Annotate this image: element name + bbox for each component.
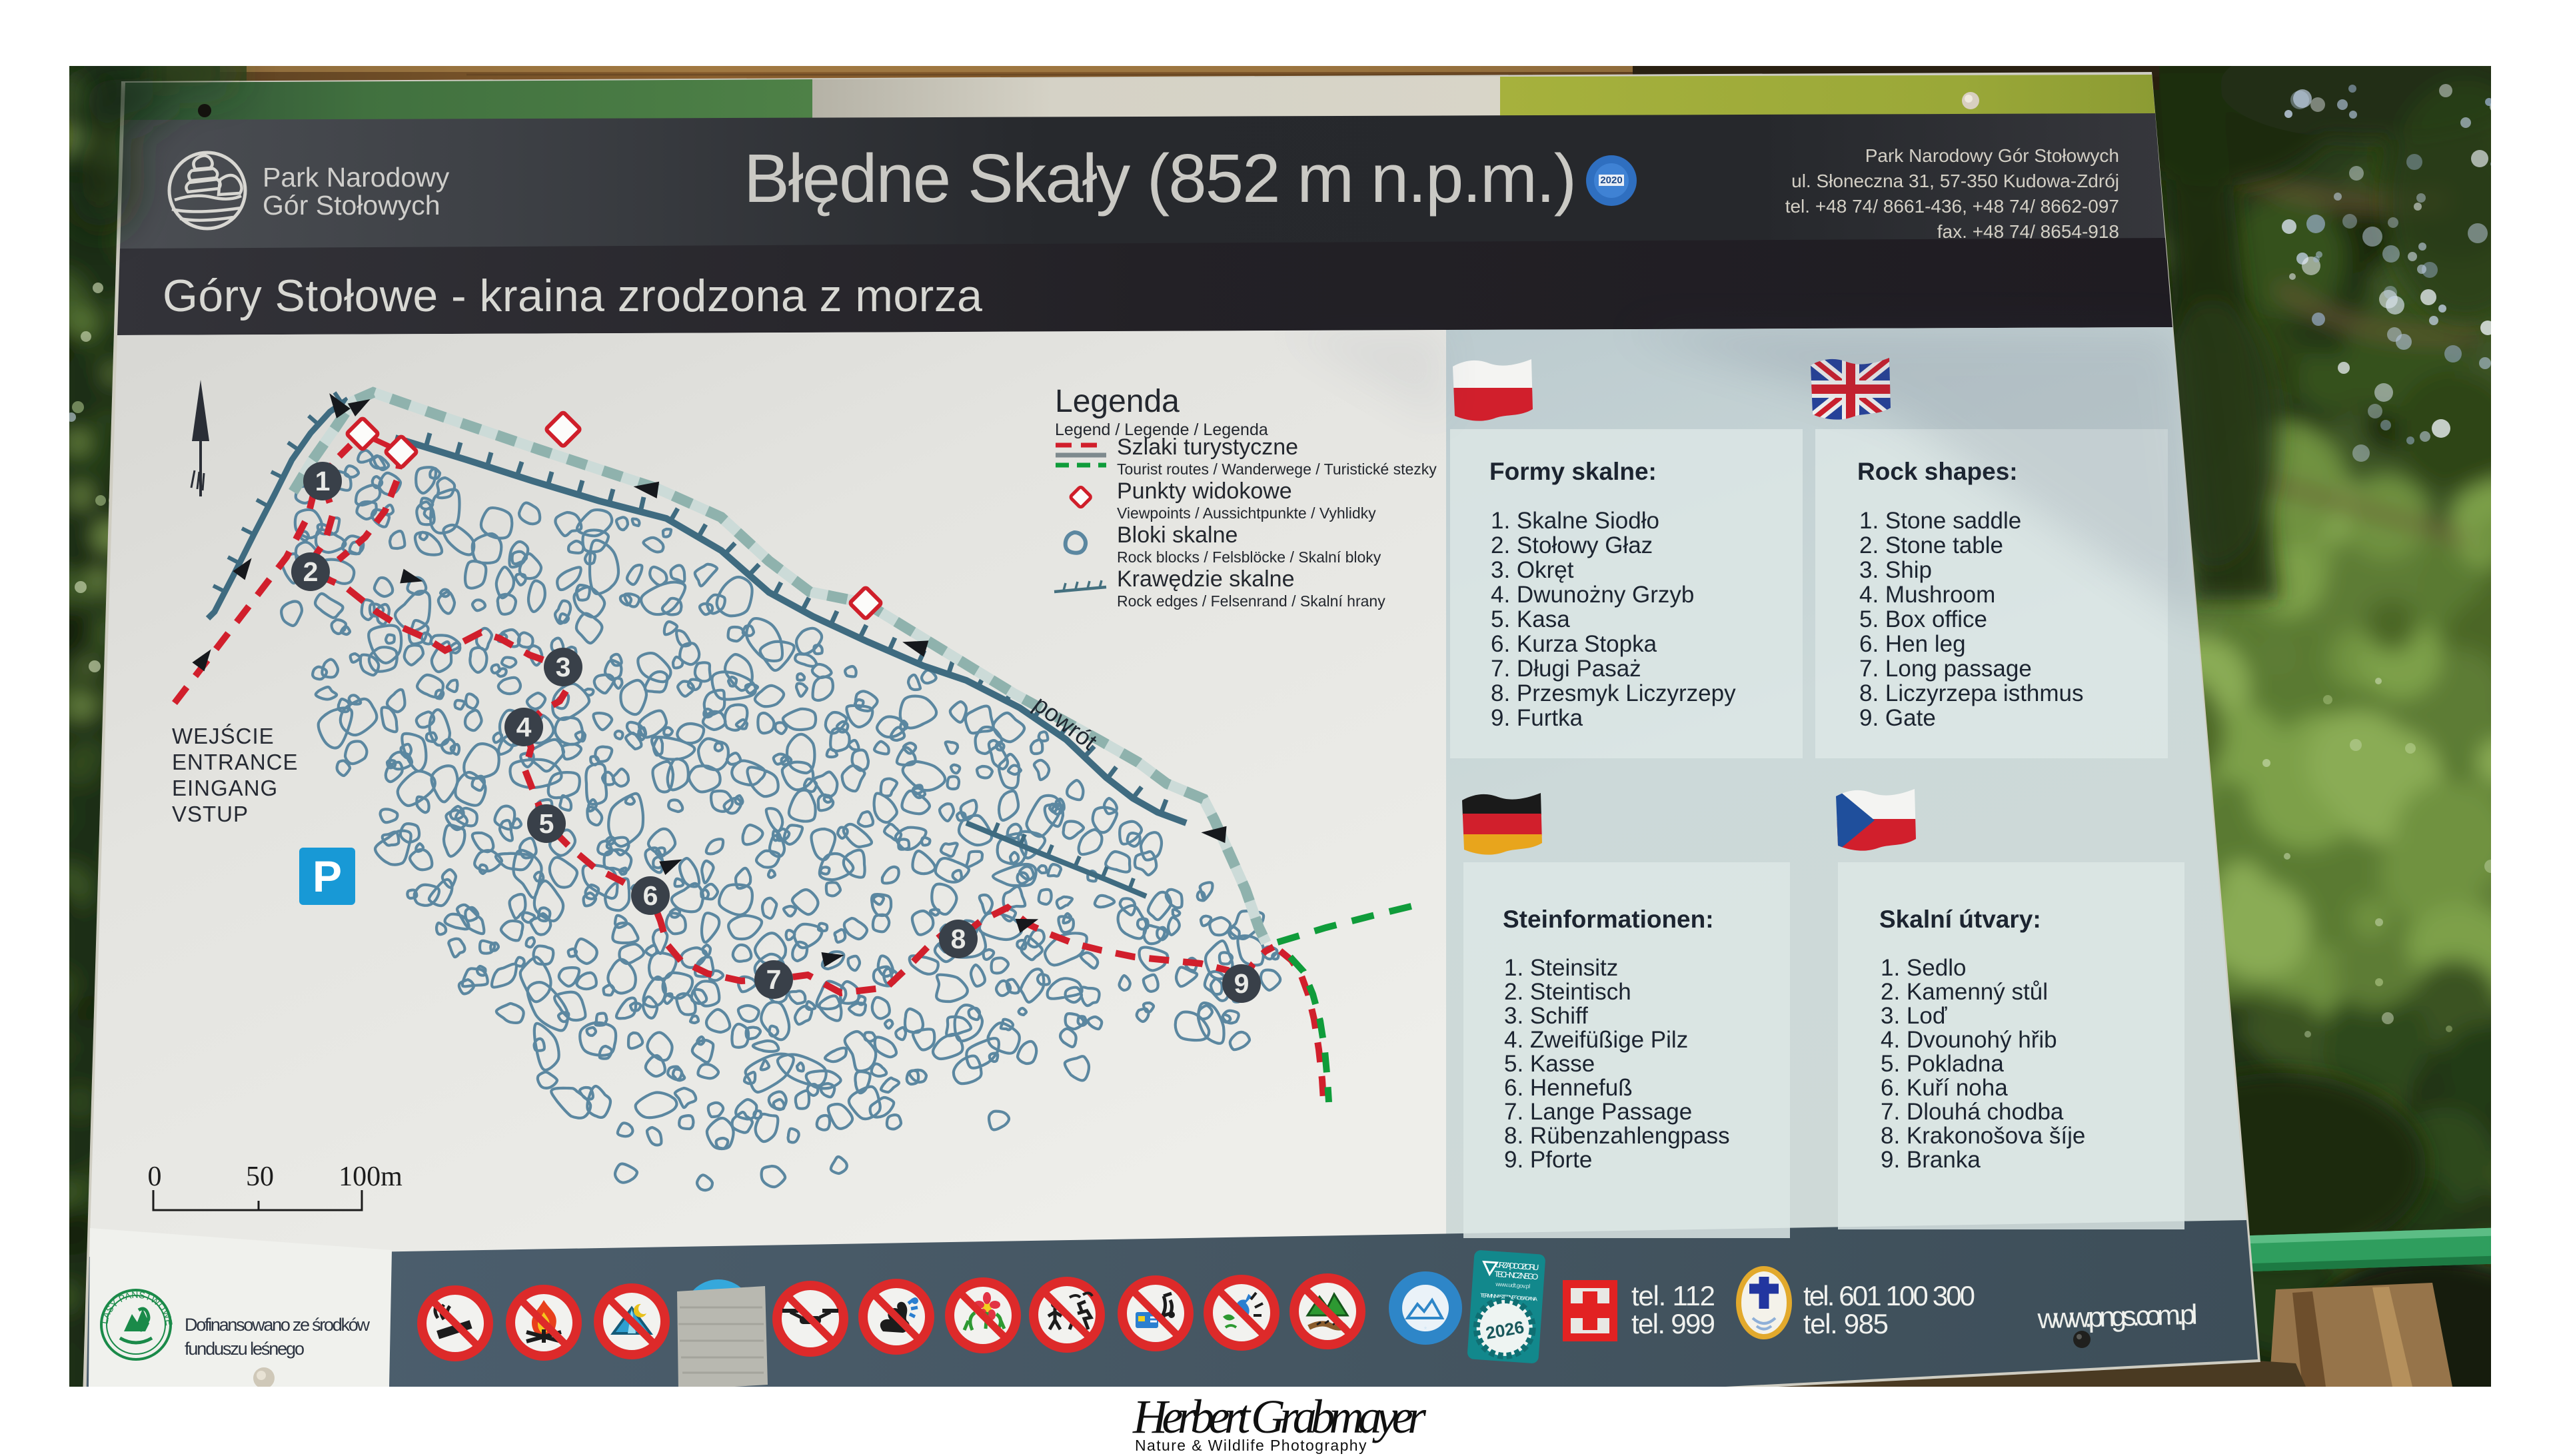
svg-text:9. Pforte: 9. Pforte (1504, 1147, 1592, 1173)
svg-text:Herbert Grabmayer: Herbert Grabmayer (1132, 1390, 1427, 1443)
svg-text:6. Kurza Stopka: 6. Kurza Stopka (1491, 631, 1657, 657)
svg-text:1. Skalne Siodło: 1. Skalne Siodło (1491, 508, 1659, 534)
svg-text:8. Rübenzahlengpass: 8. Rübenzahlengpass (1504, 1123, 1730, 1149)
svg-text:2. Stone table: 2. Stone table (1859, 532, 2003, 558)
svg-text:4: 4 (516, 712, 532, 742)
svg-text:6. Hen leg: 6. Hen leg (1859, 631, 1966, 657)
svg-text:Skalní útvary:: Skalní útvary: (1879, 906, 2041, 933)
svg-text:Rock edges / Felsenrand / Skal: Rock edges / Felsenrand / Skalní hrany (1117, 592, 1385, 610)
svg-text:2. Steintisch: 2. Steintisch (1504, 979, 1631, 1005)
svg-text:Park Narodowy Gór Stołowych: Park Narodowy Gór Stołowych (1865, 145, 2119, 166)
svg-text:Formy skalne:: Formy skalne: (1489, 458, 1657, 485)
svg-text:7. Long passage: 7. Long passage (1859, 656, 2032, 682)
svg-text:3. Ship: 3. Ship (1859, 557, 1932, 583)
svg-text:4. Zweifüßige Pilz: 4. Zweifüßige Pilz (1504, 1027, 1688, 1053)
svg-text:4. Dwunożny Grzyb: 4. Dwunożny Grzyb (1491, 582, 1694, 608)
svg-text:www.pngs.com.pl: www.pngs.com.pl (2037, 1299, 2198, 1335)
svg-text:9. Branka: 9. Branka (1881, 1147, 1981, 1173)
svg-text:WEJŚCIE: WEJŚCIE (172, 723, 275, 748)
svg-text:Krawędzie skalne: Krawędzie skalne (1117, 566, 1294, 592)
svg-text:3. Schiff: 3. Schiff (1504, 1003, 1588, 1029)
svg-text:fax. +48 74/ 8654-918: fax. +48 74/ 8654-918 (1937, 221, 2119, 242)
svg-text:5. Pokladna: 5. Pokladna (1881, 1051, 2004, 1077)
svg-text:3. Loď: 3. Loď (1881, 1003, 1947, 1029)
svg-text:6. Kuří noha: 6. Kuří noha (1881, 1075, 2008, 1101)
svg-text:5. Box office: 5. Box office (1859, 606, 1987, 632)
svg-text:*: * (1424, 1325, 1427, 1334)
svg-text:7. Długi Pasaż: 7. Długi Pasaż (1491, 656, 1641, 682)
svg-text:50: 50 (246, 1161, 274, 1192)
svg-text:funduszu leśnego: funduszu leśnego (185, 1339, 305, 1359)
svg-text:9. Furtka: 9. Furtka (1491, 705, 1583, 731)
svg-text:8. Przesmyk Liczyrzepy: 8. Przesmyk Liczyrzepy (1491, 680, 1736, 706)
svg-text:Szlaki turystyczne: Szlaki turystyczne (1117, 434, 1298, 460)
svg-text:3. Okręt: 3. Okręt (1491, 557, 1574, 583)
svg-text:6. Hennefuß: 6. Hennefuß (1504, 1075, 1633, 1101)
svg-text:P: P (313, 852, 342, 901)
svg-text:Góry Stołowe - kraina zrodzona: Góry Stołowe - kraina zrodzona z morza (163, 271, 982, 321)
svg-text:9: 9 (1234, 968, 1250, 999)
svg-text:5: 5 (539, 808, 554, 839)
svg-text:ul. Słoneczna 31, 57-350 Kudow: ul. Słoneczna 31, 57-350 Kudowa-Zdrój (1791, 171, 2119, 191)
svg-text:8. Krakonošova šíje: 8. Krakonošova šíje (1881, 1123, 2085, 1149)
svg-text:4. Mushroom: 4. Mushroom (1859, 582, 1995, 608)
svg-text:7. Dlouhá chodba: 7. Dlouhá chodba (1881, 1099, 2064, 1125)
svg-text:Nature & Wildlife Photography: Nature & Wildlife Photography (1135, 1437, 1368, 1454)
svg-text:5. Kasse: 5. Kasse (1504, 1051, 1595, 1077)
svg-text:Park Narodowy: Park Narodowy (263, 162, 450, 193)
svg-text:9. Gate: 9. Gate (1859, 705, 1936, 731)
svg-text:VSTUP: VSTUP (172, 802, 249, 826)
svg-text:3: 3 (556, 652, 571, 682)
svg-text:8: 8 (951, 924, 966, 954)
svg-text:Błędne Skały (852 m n.p.m.): Błędne Skały (852 m n.p.m.) (744, 140, 1577, 217)
svg-text:8. Liczyrzepa isthmus: 8. Liczyrzepa isthmus (1859, 680, 2084, 706)
svg-text:Steinformationen:: Steinformationen: (1503, 906, 1714, 933)
svg-text:5. Kasa: 5. Kasa (1491, 606, 1570, 632)
svg-text:tel. 999: tel. 999 (1631, 1308, 1715, 1339)
svg-text:Tourist routes / Wanderwege /: Tourist routes / Wanderwege / Turistické… (1117, 460, 1437, 478)
svg-text:2: 2 (303, 556, 319, 587)
svg-text:ENTRANCE: ENTRANCE (172, 750, 299, 774)
svg-text:2. Kamenný stůl: 2. Kamenný stůl (1881, 979, 2048, 1005)
svg-text:Bloki skalne: Bloki skalne (1117, 522, 1238, 548)
svg-text:100m: 100m (339, 1161, 403, 1192)
svg-text:tel. 601 100 300: tel. 601 100 300 (1803, 1280, 1975, 1311)
svg-text:1. Sedlo: 1. Sedlo (1881, 955, 1966, 981)
svg-text:Rock blocks / Felsblöcke / Ska: Rock blocks / Felsblöcke / Skalní bloky (1117, 548, 1381, 566)
svg-text:7. Lange Passage: 7. Lange Passage (1504, 1099, 1692, 1125)
svg-text:1. Steinsitz: 1. Steinsitz (1504, 955, 1618, 981)
svg-text:4. Dvounohý hřib: 4. Dvounohý hřib (1881, 1027, 2057, 1053)
svg-text:Punkty widokowe: Punkty widokowe (1117, 478, 1292, 504)
svg-text:tel. +48 74/ 8661-436, +48 74/: tel. +48 74/ 8661-436, +48 74/ 8662-097 (1785, 196, 2119, 217)
svg-text:1. Stone saddle: 1. Stone saddle (1859, 508, 2021, 534)
svg-text:6: 6 (643, 880, 658, 911)
svg-text:Gór Stołowych: Gór Stołowych (263, 190, 440, 221)
svg-text:7: 7 (766, 964, 782, 995)
svg-text:tel. 985: tel. 985 (1803, 1308, 1889, 1339)
svg-text:2. Stołowy Głaz: 2. Stołowy Głaz (1491, 532, 1653, 558)
svg-text:1: 1 (315, 466, 331, 496)
svg-text:0: 0 (148, 1161, 162, 1192)
svg-text:EINGANG: EINGANG (172, 776, 278, 800)
svg-text:2020: 2020 (1600, 175, 1622, 186)
svg-text:Legenda: Legenda (1055, 384, 1180, 419)
svg-text:Dofinansowano ze środków: Dofinansowano ze środków (185, 1315, 371, 1335)
svg-text:tel. 112: tel. 112 (1631, 1280, 1715, 1311)
svg-text:Viewpoints / Aussichtpunkte /: Viewpoints / Aussichtpunkte / Vyhlidky (1117, 504, 1376, 522)
